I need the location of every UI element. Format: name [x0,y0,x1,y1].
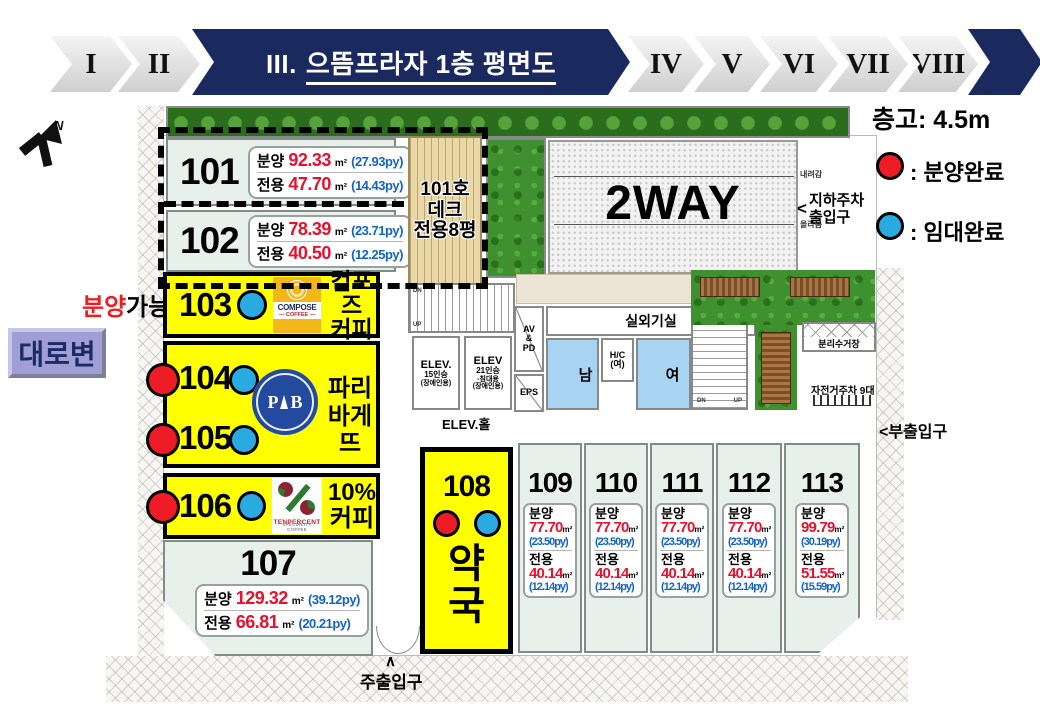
sale-unit: m² [335,158,347,169]
elevator-hall-label: ELEV.홀 [442,414,490,433]
nav-step-label: IV [650,48,682,81]
nav-step-7[interactable]: VII [828,36,908,92]
sale-label: 분양 [257,219,285,240]
compose-coffee-logo: COMPOSE — COFFEE — [273,277,321,333]
status-leased-circle [237,491,266,521]
nav-step-5[interactable]: V [694,36,770,92]
nav-step-3-active[interactable]: III.으뜸프라자 1층 평면도 [192,29,630,95]
unit-103-tenant-label: 컴포즈커피 [327,269,376,341]
eps-shaft: EPS [514,374,544,412]
sale-py: (39.12py) [308,592,360,607]
status-sold-circle [433,510,460,537]
unit-number: 111 [652,467,712,499]
unit-102-area-box: 분양78.39m²(23.71py) 전용40.50m²(12.25py) [248,215,412,268]
excl-area: 66.81 [236,612,279,633]
nav-step-1[interactable]: I [50,36,132,92]
unit-number: 108 [443,470,490,504]
unit-112-area-box: 분양77.70m²(23.50py) 전용40.14m²(12.14py) [722,503,776,598]
nav-step-label: VI [783,48,815,81]
sale-label: 분양 [204,588,232,609]
leased-legend-circle [876,212,904,240]
ten-percent-logo: TENPERCENT SPECIALITY COFFEE [272,478,322,534]
tree-strip [166,106,850,138]
excl-label: 전용 [204,612,232,633]
compose-logo-name: COMPOSE [273,303,321,312]
excl-area: 47.70 [288,174,331,195]
two-way-label: 2WAY [550,176,796,231]
sale-label: 분양 [257,150,285,171]
unit-110: 110 분양77.70m²(23.50py) 전용40.14m²(12.14py… [584,443,648,653]
status-sold-circle [146,423,180,457]
unit-number: 109 [520,467,580,499]
status-sold-circle [146,490,180,524]
unit-113-area-box: 분양99.79m²(30.19py) 전용51.55m²(15.59py) [795,503,849,598]
ten-percent-sub: SPECIALITY COFFEE [272,522,322,532]
courtyard-walk [516,274,702,304]
unit-107: 107 분양129.32m²(39.12py) 전용66.81m²(20.21p… [163,540,373,656]
excl-unit: m² [335,182,347,193]
unit-108: 108 약국 [420,447,513,654]
coffee-bean-icon [300,500,315,515]
dashed-divider-101-102 [164,201,404,207]
unit-110-area-box: 분양77.70m²(23.50py) 전용40.14m²(12.14py) [589,503,643,598]
unit-number: 102 [180,220,239,262]
unit-103: 103 COMPOSE — COFFEE — 컴포즈커피 [163,272,380,338]
sidewalk-bottom [106,656,908,702]
sale-area: 78.39 [288,219,331,240]
eiffel-tower-icon [280,395,288,409]
compose-emblem-icon [287,280,307,300]
unit-number: 112 [718,467,780,499]
unit-104-105-tenant-label: 파리바게뜨 [319,375,381,458]
unit-108-tenant-label: 약국 [448,543,485,627]
status-leased-circle [229,425,259,455]
page-title-prefix: III. [266,49,297,79]
unit-113: 113 분양99.79m²(30.19py) 전용51.55m²(15.59py… [784,443,860,653]
unit-number: 101 [180,151,239,193]
sale-area: 129.32 [236,588,288,609]
nav-step-label: VIII [911,48,966,81]
unit-number: 107 [165,544,371,584]
available-part1: 분양 [82,294,126,321]
unit-111: 111 분양77.70m²(23.50py) 전용40.14m²(12.14py… [650,443,714,653]
ramp-down-label: 내려감 [800,169,822,180]
womens-restroom: 여 [636,338,691,410]
nav-step-6[interactable]: VI [760,36,838,92]
nav-step-4[interactable]: IV [628,36,704,92]
sale-area: 92.33 [288,150,331,171]
unit-104-105: 104 105 P B 파리바게뜨 [163,341,380,468]
status-sold-circle [146,363,180,397]
mens-restroom: 남 [546,338,599,410]
status-leased-circle [237,290,267,320]
excl-unit: m² [335,251,347,262]
stairs-dn-label: DN [413,288,422,294]
nav-step-label: VII [846,48,890,81]
deck-label: 101호 데크 전용8평 [413,180,476,243]
main-road-badge: 대로변 [8,328,106,378]
unit-101: 101 분양92.33m²(27.93py) 전용47.70m²(14.43py… [166,138,396,206]
unit-number: 104 [179,359,231,397]
mens-label: 남 [579,364,593,385]
stairs-left: DN UP [408,283,515,333]
compose-logo-sub: — COFFEE — [273,312,321,318]
unit-109-area-box: 분양77.70m²(23.50py) 전용40.14m²(12.14py) [523,503,577,598]
sold-legend-label: : 분양완료 [910,155,1004,187]
stairs-up-label: UP [734,398,742,404]
womens-label: 여 [666,364,680,385]
underground-parking-entrance-label: < 지하주차출입구 [797,192,864,227]
main-entrance-label: 주출입구 [360,668,423,693]
excl-py: (14.43py) [351,178,403,193]
bench [700,277,760,297]
unit-102: 102 분양78.39m²(23.71py) 전용40.50m²(12.25py… [166,210,396,272]
sold-legend-circle [876,152,904,180]
unit-number: 110 [586,467,646,499]
status-leased-circle [474,510,501,537]
excl-py: (20.21py) [299,616,351,631]
excl-label: 전용 [257,174,285,195]
paris-baguette-logo: P B [252,369,318,435]
unit-number: 113 [786,467,858,499]
sale-unit: m² [292,596,304,607]
sale-unit: m² [335,227,347,238]
unit-112: 112 분양77.70m²(23.50py) 전용40.14m²(12.14py… [716,443,782,653]
ceiling-height-label: 층고: 4.5m [872,100,990,136]
unit-101-deck: 101호 데크 전용8평 [408,136,482,286]
unit-111-area-box: 분양77.70m²(23.50py) 전용40.14m²(12.14py) [655,503,709,598]
bench [761,332,791,404]
bench [790,277,850,297]
stairs-up-label: UP [413,322,421,328]
left-arrow-icon: < [879,424,888,441]
excl-unit: m² [282,620,294,631]
nav-step-label: II [148,48,171,81]
recycle-label: 분리수거장 [804,337,874,350]
nav-step-label: V [722,48,743,81]
unit-106-tenant-label: 10%커피 [328,480,376,533]
floorplan-slide: I II III.으뜸프라자 1층 평면도 IV V VI VII VIII N… [0,0,1040,720]
stairs-right: DN UP [691,310,748,410]
excl-py: (12.25py) [351,247,403,262]
bike-rack-icon [813,395,871,406]
recycle-xpattern [804,324,874,337]
unit-107-area-box: 분양129.32m²(39.12py) 전용66.81m²(20.21py) [195,584,369,637]
north-letter: N [54,118,64,133]
sale-py: (23.71py) [351,223,403,238]
unit-number: 106 [179,487,231,525]
sale-py: (27.93py) [351,154,403,169]
north-arrow-icon: N [16,114,70,172]
av-pd-shaft: AV&PD [514,306,544,372]
unit-101-area-box: 분양92.33m²(27.93py) 전용47.70m²(14.43py) [248,146,412,199]
excl-label: 전용 [257,243,285,264]
left-arrow-icon: < [797,199,807,219]
sidewalk-right [874,268,904,620]
hc-restroom: H/C (여) [601,338,634,382]
excl-area: 40.50 [288,243,331,264]
outdoor-unit-label: 실외기실 [625,311,677,331]
planting-top [486,138,546,278]
unit-number: 103 [179,286,231,324]
unit-number: 105 [179,419,231,457]
unit-106: 106 TENPERCENT SPECIALITY COFFEE 10%커피 [163,473,380,539]
page-title: III.으뜸프라자 1층 평면도 [266,44,556,81]
pb-letter-b: B [290,392,302,413]
nav-step-label: I [85,48,96,81]
main-road-label: 대로변 [18,333,95,373]
coffee-bean-icon [278,482,293,497]
stairs-dn-label: DN [697,398,706,404]
elevator-21: ELEV 21인승 -침대용 (장애인용) [464,336,512,410]
page-title-text: 으뜸프라자 1층 평면도 [306,49,556,85]
nav-end-cap [968,29,1040,95]
unit-109: 109 분양77.70m²(23.50py) 전용40.14m²(12.14py… [518,443,582,653]
available-for-sale-label: 분양가능 [82,287,170,322]
parking-ramp: 2WAY [548,140,798,274]
elevator-15: ELEV. 15인승 (장애인용) [412,336,460,410]
recycle-area: 분리수거장 [802,322,876,352]
nav-step-8[interactable]: VIII [898,36,978,92]
leased-legend-label: : 임대완료 [910,215,1004,247]
pb-letter-p: P [267,392,278,413]
side-entrance-label: <부출입구 [879,418,947,442]
